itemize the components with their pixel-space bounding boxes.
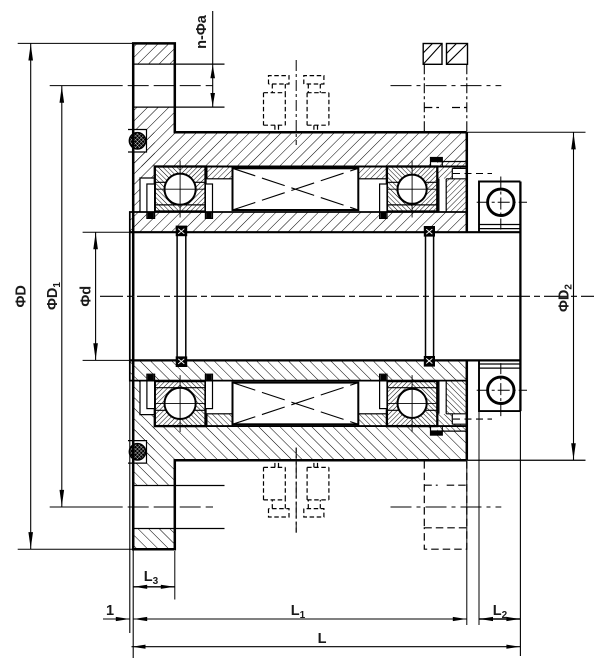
svg-text:L: L [318, 631, 327, 647]
svg-text:Φd: Φd [79, 286, 95, 307]
svg-text:ΦD: ΦD [14, 285, 30, 307]
svg-text:n-Φa: n-Φa [194, 14, 210, 49]
svg-text:1: 1 [106, 603, 114, 619]
